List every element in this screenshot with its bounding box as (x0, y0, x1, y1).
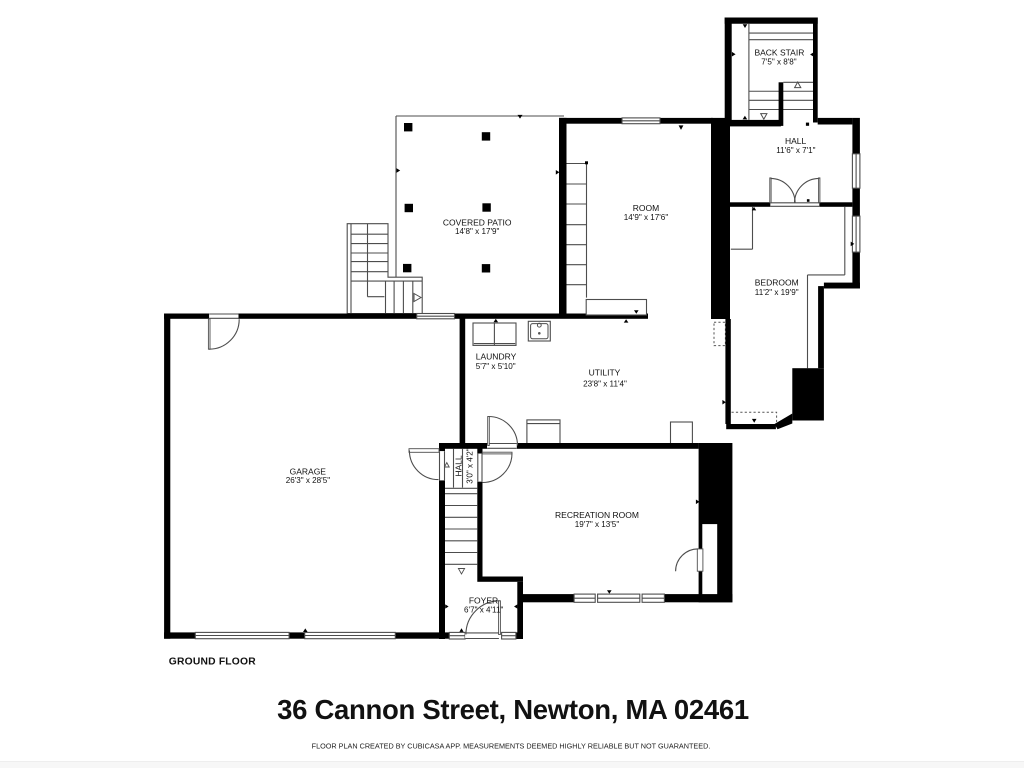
svg-text:6'7" x 4'11": 6'7" x 4'11" (464, 606, 503, 615)
svg-text:GROUND FLOOR: GROUND FLOOR (169, 656, 256, 667)
svg-text:GARAGE: GARAGE (290, 467, 327, 477)
svg-text:LAUNDRY: LAUNDRY (476, 352, 517, 362)
svg-text:BACK STAIR: BACK STAIR (754, 48, 804, 58)
svg-text:11'6" x 7'1": 11'6" x 7'1" (776, 146, 815, 155)
svg-text:14'8" x 17'9": 14'8" x 17'9" (455, 227, 500, 236)
svg-text:14'9" x 17'6": 14'9" x 17'6" (624, 213, 669, 222)
svg-text:COVERED PATIO: COVERED PATIO (443, 218, 512, 228)
svg-text:23'8" x 11'4": 23'8" x 11'4" (583, 379, 627, 388)
svg-text:36 Cannon Street, Newton, MA 0: 36 Cannon Street, Newton, MA 02461 (277, 694, 749, 725)
svg-text:11'2" x 19'9": 11'2" x 19'9" (755, 288, 799, 297)
svg-text:19'7" x 13'5": 19'7" x 13'5" (575, 520, 620, 529)
svg-text:FOYER: FOYER (469, 596, 498, 606)
svg-text:UTILITY: UTILITY (589, 368, 621, 378)
svg-text:ROOM: ROOM (633, 203, 659, 213)
svg-text:HALL: HALL (785, 136, 807, 146)
svg-text:7'5" x 8'8": 7'5" x 8'8" (761, 58, 797, 67)
svg-text:3'0" x 4'2": 3'0" x 4'2" (465, 448, 474, 484)
svg-text:26'3" x 28'5": 26'3" x 28'5" (286, 476, 331, 485)
svg-text:HALL: HALL (454, 455, 464, 477)
svg-text:BEDROOM: BEDROOM (755, 278, 799, 288)
svg-text:FLOOR PLAN CREATED BY CUBICASA: FLOOR PLAN CREATED BY CUBICASA APP. MEAS… (312, 742, 711, 751)
svg-text:RECREATION ROOM: RECREATION ROOM (555, 510, 639, 520)
svg-text:5'7" x 5'10": 5'7" x 5'10" (476, 362, 516, 371)
